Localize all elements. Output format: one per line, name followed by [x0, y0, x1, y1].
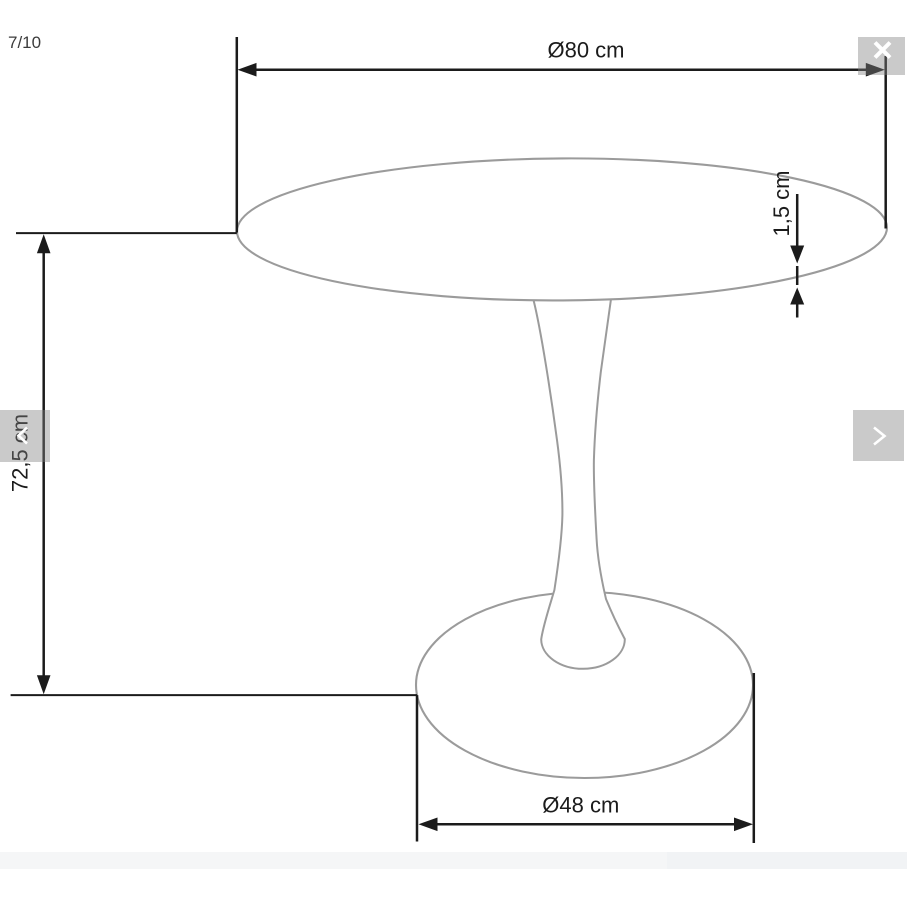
svg-text:Ø80 cm: Ø80 cm: [547, 38, 624, 63]
svg-text:1,5 cm: 1,5 cm: [769, 170, 794, 236]
svg-text:Ø48 cm: Ø48 cm: [542, 793, 619, 818]
